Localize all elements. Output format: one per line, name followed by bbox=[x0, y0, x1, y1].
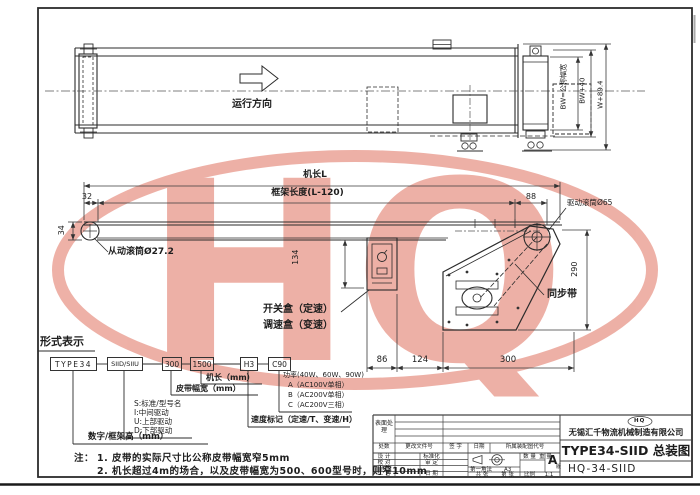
dim-300: 300 bbox=[493, 356, 523, 365]
type-code-box-power: C90 bbox=[268, 357, 291, 371]
dim-124: 124 bbox=[406, 356, 434, 365]
drawing-number: HQ-34-SIID bbox=[568, 464, 636, 475]
col-header-date: 日期 bbox=[469, 445, 489, 451]
power-line-c: C（AC200V三相） bbox=[288, 402, 349, 409]
drawing-title: TYPE34-SIID 总装图 bbox=[560, 444, 692, 457]
type-code-box-type34: TYPE34 bbox=[50, 357, 97, 371]
company-name: 无锡汇千物流机械制造有限公司 bbox=[562, 428, 690, 437]
dim-134: 134 bbox=[292, 245, 300, 269]
sheets-label: 共 张 bbox=[469, 473, 495, 479]
dim-nominal-belt-width: BW=公称幅宽 bbox=[560, 57, 567, 117]
drive-type-line-s: S:标准/型号名 bbox=[134, 400, 181, 408]
dim-w-overall: W+89.4 bbox=[597, 73, 604, 117]
driven-roller-label: 从动滚筒Ø27.2 bbox=[108, 248, 200, 257]
type-code-box-speed: H3 bbox=[240, 357, 258, 371]
page-label: 第 张 bbox=[496, 473, 519, 479]
row-label-process: 工 艺 bbox=[374, 472, 394, 478]
type-code-heading: 形式表示 bbox=[40, 336, 84, 348]
power-line-a: A（AC100V单相） bbox=[288, 382, 349, 389]
dim-86: 86 bbox=[370, 356, 394, 365]
col-header-signature: 签 字 bbox=[444, 445, 467, 451]
type-code-box-length: 1500 bbox=[190, 357, 214, 371]
surface-treatment-label: 表面处理 bbox=[375, 420, 393, 434]
col-header-change-doc: 更改文件号 bbox=[396, 445, 442, 451]
col-header-changes: 处数 bbox=[374, 445, 394, 451]
notes-prefix: 注： bbox=[74, 454, 94, 464]
dim-frame-length: 框架长度(L-120) bbox=[250, 189, 365, 198]
assembly-code-label: 所属装配图代号 bbox=[491, 445, 559, 451]
first-angle-projection-icon bbox=[473, 455, 505, 465]
type-code-box-width: 300 bbox=[162, 357, 182, 371]
machine-length-label: 机长（mm） bbox=[206, 374, 255, 382]
dim-32: 32 bbox=[78, 193, 96, 201]
switch-box-label: 开关盒（定速） bbox=[263, 305, 348, 316]
mid-label-date: 日 期 bbox=[421, 472, 442, 478]
frame-height-label: 数字/框架高（mm） bbox=[88, 433, 168, 442]
power-line-0: 功率(40W、60W、90W) bbox=[283, 372, 364, 379]
dim-machine-length: 机长L bbox=[280, 171, 350, 180]
drive-type-line-u: U:上部驱动 bbox=[134, 418, 172, 426]
power-line-b: B（AC200V单相） bbox=[288, 392, 349, 399]
type-code-box-drive: SIID/SIIU bbox=[107, 357, 143, 371]
speed-mark-label: 速度标记（定速/T、变速/H） bbox=[251, 416, 357, 424]
company-logo-text: HQ bbox=[634, 419, 645, 425]
sync-belt-label: 同步带 bbox=[547, 290, 587, 301]
speed-box-label: 调速盒（变速） bbox=[263, 321, 348, 332]
drive-roller-label: 驱动滚筒Ø65 bbox=[567, 199, 639, 207]
drive-type-line-i: I:中间驱动 bbox=[134, 409, 169, 417]
dim-88: 88 bbox=[519, 193, 543, 201]
scale-value: 1:1 bbox=[540, 473, 558, 479]
mid-label-approve: 审 定 bbox=[421, 461, 442, 467]
qty-label: 数 量 bbox=[521, 455, 538, 461]
dim-290: 290 bbox=[571, 257, 579, 281]
running-direction-label: 运行方向 bbox=[232, 100, 292, 111]
drawing-sheet: HQ bbox=[0, 0, 700, 495]
note-line-1: 1. 皮带的实际尺寸比公称皮带幅宽窄5mm bbox=[97, 454, 290, 464]
scale-label: 比例 bbox=[521, 473, 538, 479]
dim-34: 34 bbox=[58, 220, 66, 240]
dim-bw-plus-40: BW+40 bbox=[579, 71, 586, 111]
revision-suffix: 版 bbox=[556, 465, 561, 470]
belt-width-label: 皮带幅宽（mm） bbox=[176, 385, 241, 393]
